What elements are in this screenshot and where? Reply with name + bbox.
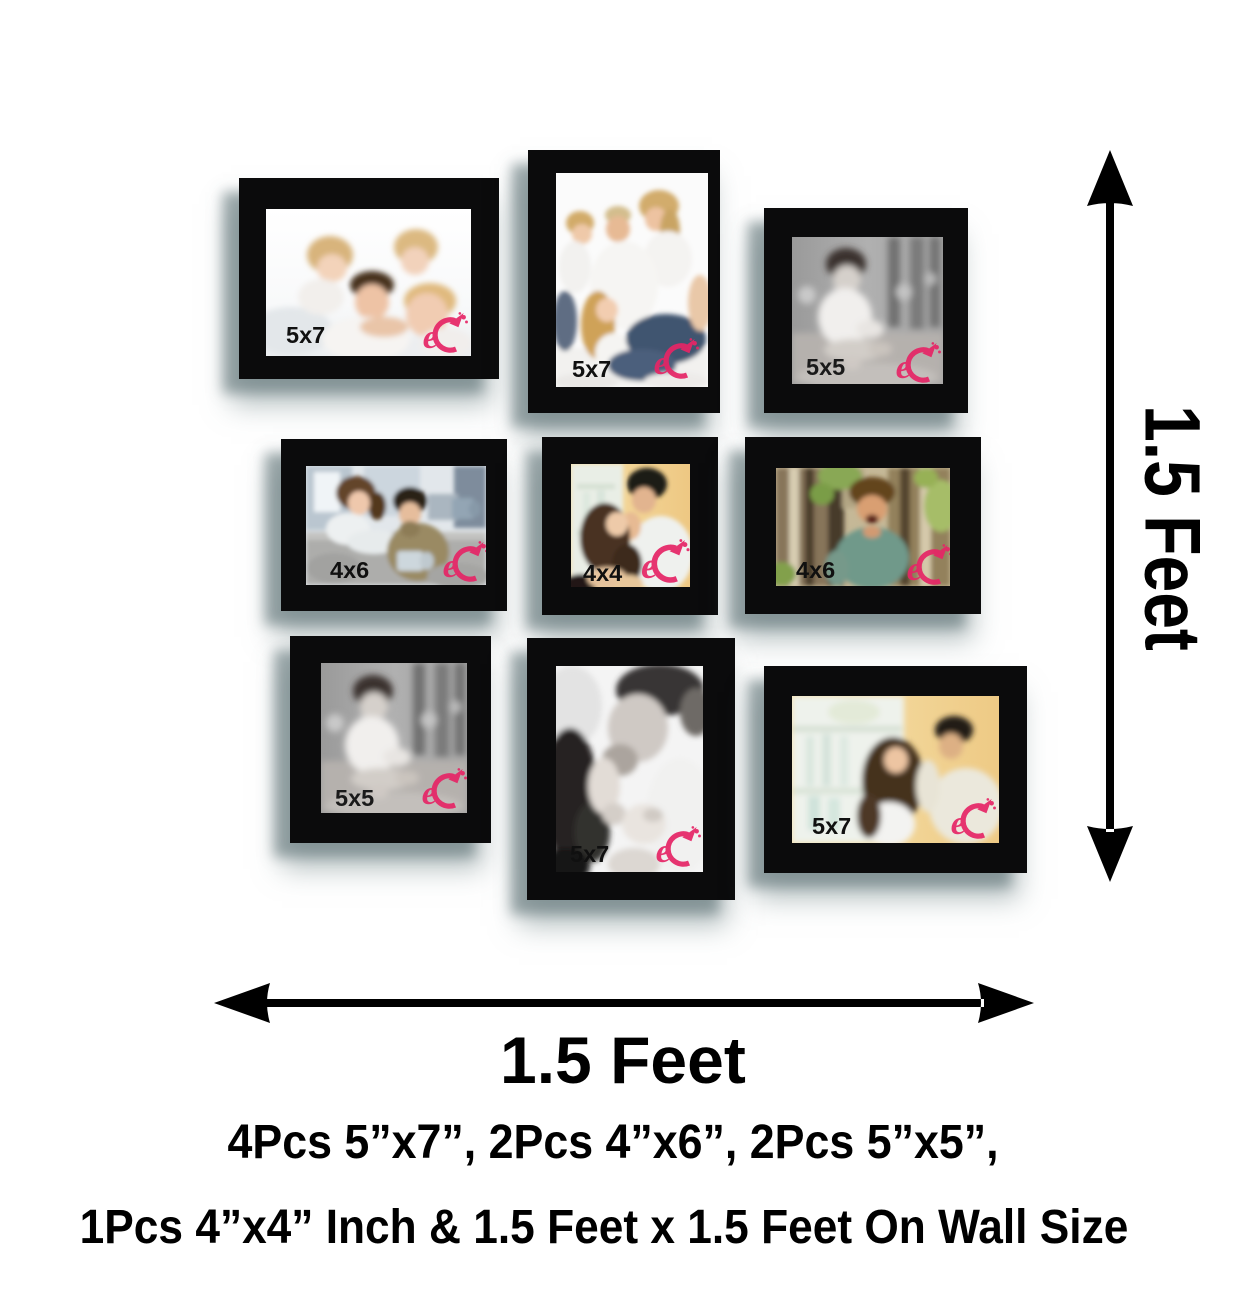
svg-text:5x7: 5x7 xyxy=(286,322,325,348)
svg-text:5x7: 5x7 xyxy=(812,813,851,839)
svg-text:5x5: 5x5 xyxy=(806,354,845,380)
svg-text:4x4: 4x4 xyxy=(583,560,622,586)
svg-text:e: e xyxy=(907,551,922,586)
svg-text:5x7: 5x7 xyxy=(572,356,611,382)
svg-text:e: e xyxy=(654,345,669,382)
svg-text:e: e xyxy=(422,775,437,812)
svg-text:e: e xyxy=(896,349,911,384)
svg-text:5x5: 5x5 xyxy=(335,785,374,811)
svg-text:e: e xyxy=(641,545,657,586)
svg-text:e: e xyxy=(423,319,438,356)
svg-text:4x6: 4x6 xyxy=(330,557,369,583)
svg-text:e: e xyxy=(951,805,966,842)
svg-text:e: e xyxy=(656,833,671,870)
svg-text:5x7: 5x7 xyxy=(570,841,609,867)
svg-text:e: e xyxy=(443,548,458,585)
svg-text:4x6: 4x6 xyxy=(796,557,835,583)
